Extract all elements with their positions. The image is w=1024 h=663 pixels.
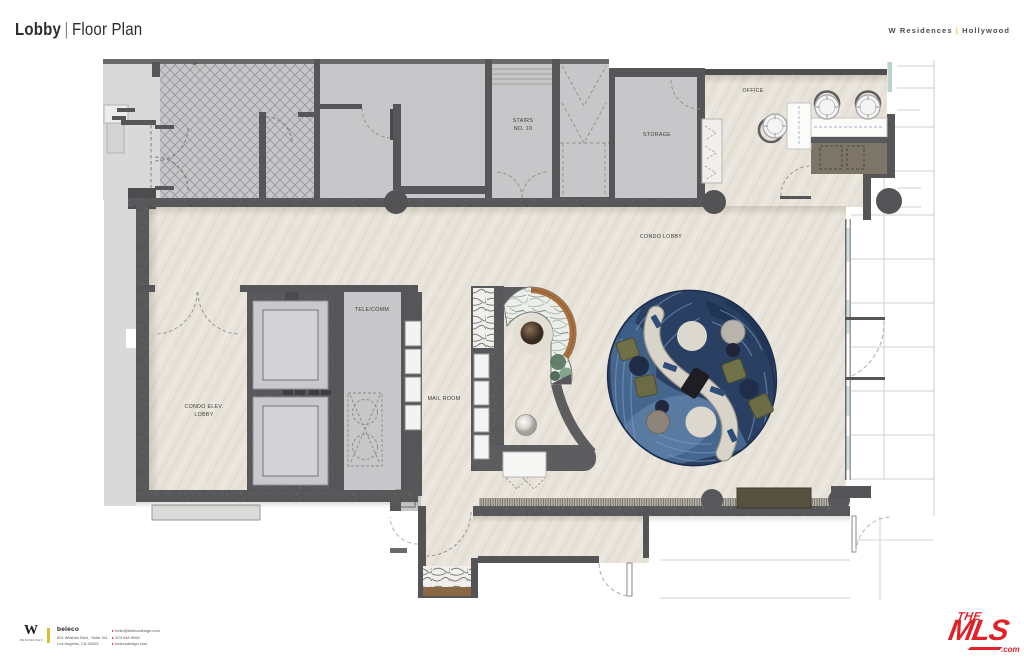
svg-text:UP: UP — [192, 61, 198, 66]
svg-text:NO. 10: NO. 10 — [514, 126, 533, 132]
svg-text:CONDO LOBBY: CONDO LOBBY — [640, 234, 682, 240]
svg-text:LOBBY: LOBBY — [194, 412, 213, 418]
svg-text:STAIRS: STAIRS — [513, 118, 534, 124]
svg-text:CONDO ELEV.: CONDO ELEV. — [184, 404, 223, 410]
svg-text:OFFICE: OFFICE — [742, 88, 763, 94]
svg-text:MAIL ROOM: MAIL ROOM — [428, 396, 461, 402]
svg-text:TELE/COMM: TELE/COMM — [355, 307, 389, 313]
svg-text:STORAGE: STORAGE — [643, 132, 671, 138]
